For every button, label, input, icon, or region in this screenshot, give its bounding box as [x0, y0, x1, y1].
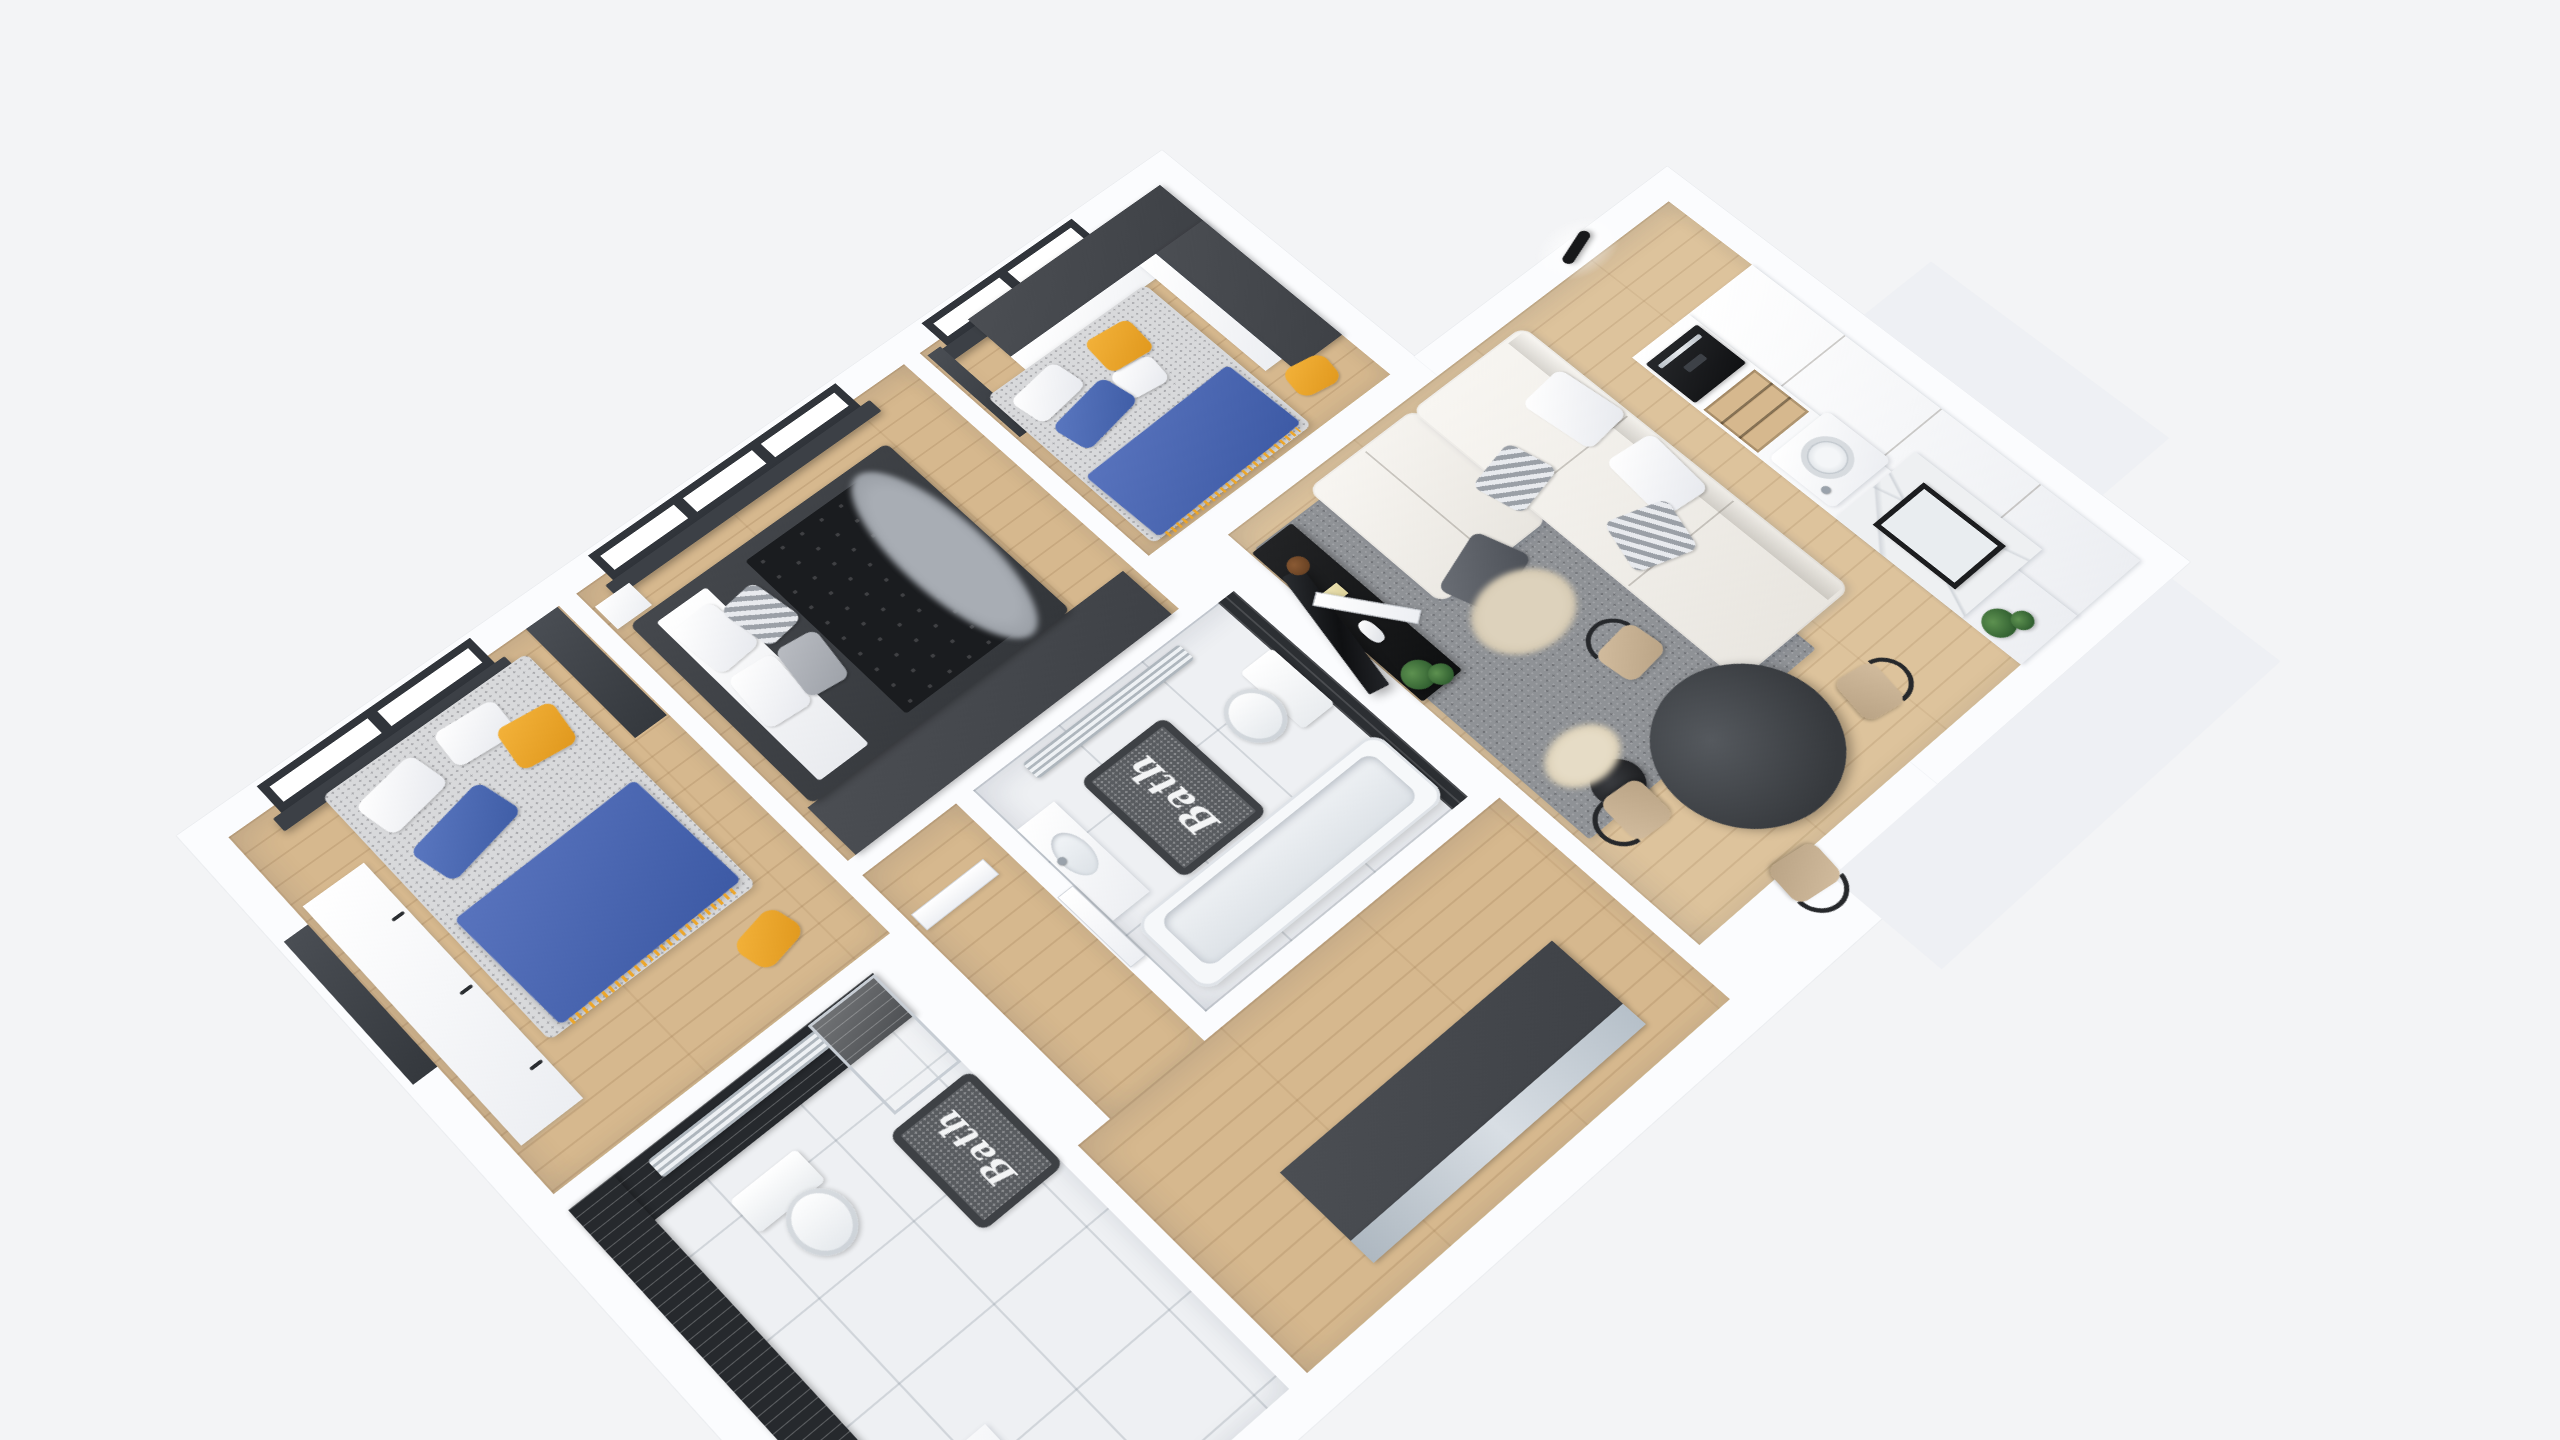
dresser-handle: [459, 984, 473, 996]
bedroom2-window-mullion-right: [752, 444, 775, 464]
dresser-handle: [529, 1059, 544, 1071]
bath-mat-text: Bath: [1118, 748, 1229, 846]
dresser-handle: [391, 911, 405, 922]
render-background: Bath Bath: [0, 0, 2560, 1440]
bedroom2-window-mullion-left: [674, 498, 697, 518]
bath-mat-text: Bath: [926, 1103, 1026, 1198]
fan-icon: [1790, 428, 1866, 488]
bedroom1-window-mullion: [368, 711, 392, 733]
cabinet-seam: [1779, 335, 1846, 388]
apartment-3d-floorplan: Bath Bath: [177, 0, 2240, 1440]
oven-display: [1683, 353, 1708, 372]
fan-knob: [1819, 484, 1833, 495]
